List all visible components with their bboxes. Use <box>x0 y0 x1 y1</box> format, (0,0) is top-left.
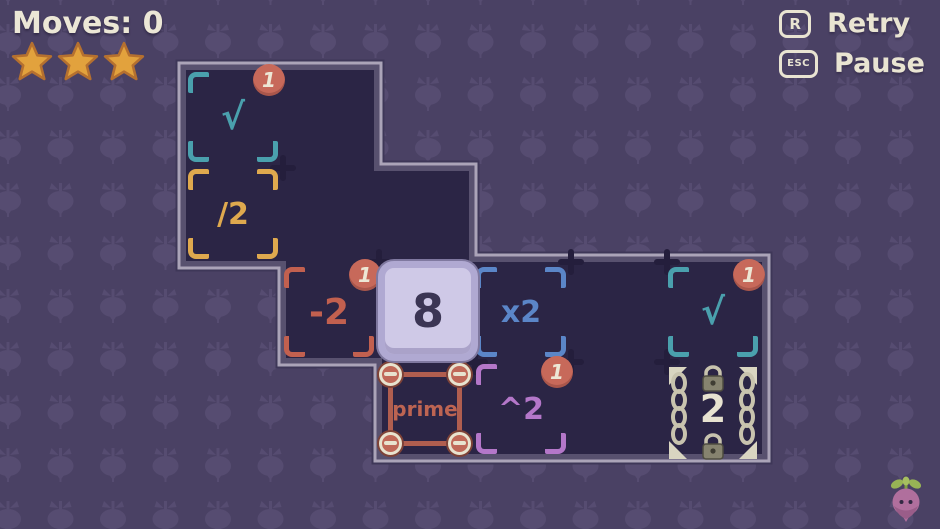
game-board: √ 1 /2 -2 1 x2 √ 1 <box>170 55 782 470</box>
turnip-mascot-icon <box>885 476 927 524</box>
counter-badge: 1 <box>349 259 381 291</box>
star-icon <box>102 40 146 84</box>
op-times-label: x2 <box>475 266 567 358</box>
cell-locked-2: 2 <box>667 363 759 455</box>
retry-label: Retry <box>827 8 919 39</box>
pause-label: Pause <box>834 48 926 79</box>
locked-value-label: 2 <box>667 363 759 455</box>
retry-control[interactable]: R Retry <box>779 8 926 39</box>
counter-badge: 1 <box>541 356 573 388</box>
counter-badge: 1 <box>733 259 765 291</box>
op-divide-label: /2 <box>187 168 279 260</box>
cell-power-2: ^2 1 <box>475 363 567 455</box>
cell-sqrt-right: √ 1 <box>667 266 759 358</box>
op-prime-label: prime <box>379 363 471 455</box>
counter-badge: 1 <box>253 64 285 96</box>
cell-sqrt-top: √ 1 <box>187 71 279 163</box>
player-tile[interactable]: 8 <box>378 261 478 361</box>
star-rating <box>10 40 146 84</box>
cell-divide-2: /2 <box>187 168 279 260</box>
star-icon <box>10 40 54 84</box>
cell-minus-2: -2 1 <box>283 266 375 358</box>
pause-control[interactable]: ESC Pause <box>779 48 926 79</box>
r-keycap-icon[interactable]: R <box>779 10 811 38</box>
control-hints: R Retry ESC Pause <box>779 8 926 79</box>
moves-counter: Moves: 0 <box>12 6 164 41</box>
cell-prime: prime <box>379 363 471 455</box>
esc-keycap-icon[interactable]: ESC <box>779 50 818 78</box>
star-icon <box>56 40 100 84</box>
game-screen: { "hud": { "moves_label": "Moves: 0", "s… <box>0 0 940 529</box>
cell-times-2: x2 <box>475 266 567 358</box>
